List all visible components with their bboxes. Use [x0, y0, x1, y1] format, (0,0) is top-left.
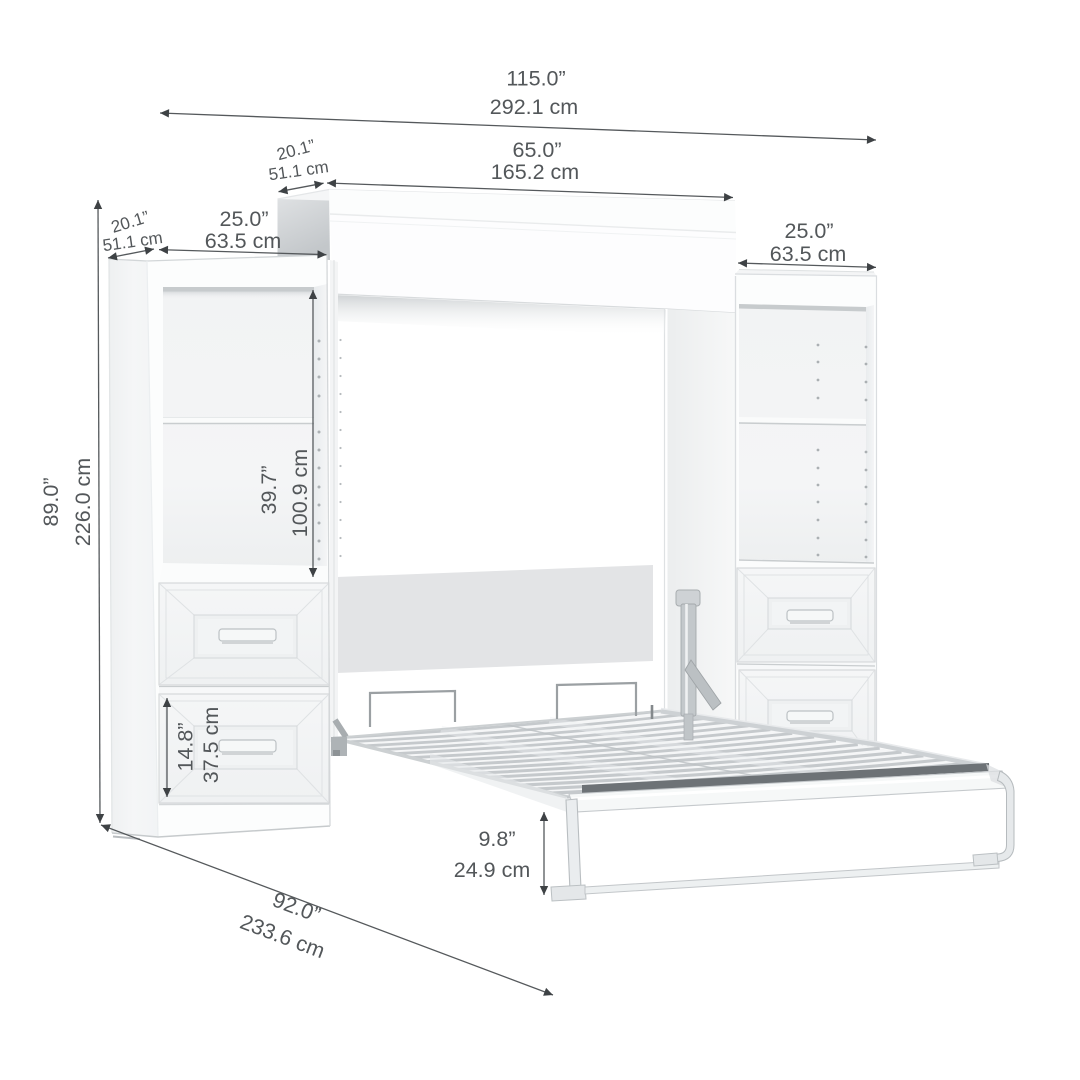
svg-text:63.5 cm: 63.5 cm: [770, 242, 846, 266]
svg-text:9.8”: 9.8”: [478, 827, 515, 851]
svg-text:39.7”: 39.7”: [257, 465, 281, 514]
svg-text:292.1 cm: 292.1 cm: [490, 95, 578, 119]
svg-text:63.5 cm: 63.5 cm: [205, 229, 281, 253]
svg-text:226.0 cm: 226.0 cm: [71, 458, 95, 546]
svg-text:65.0”: 65.0”: [512, 138, 561, 162]
svg-text:37.5 cm: 37.5 cm: [199, 707, 223, 783]
svg-text:25.0”: 25.0”: [219, 207, 268, 231]
svg-text:89.0”: 89.0”: [39, 477, 63, 526]
svg-text:165.2 cm: 165.2 cm: [491, 160, 579, 184]
svg-text:100.9 cm: 100.9 cm: [288, 449, 312, 537]
svg-text:115.0”: 115.0”: [506, 67, 565, 91]
svg-text:14.8”: 14.8”: [174, 722, 198, 771]
svg-text:25.0”: 25.0”: [784, 219, 833, 243]
svg-text:24.9 cm: 24.9 cm: [454, 858, 530, 882]
